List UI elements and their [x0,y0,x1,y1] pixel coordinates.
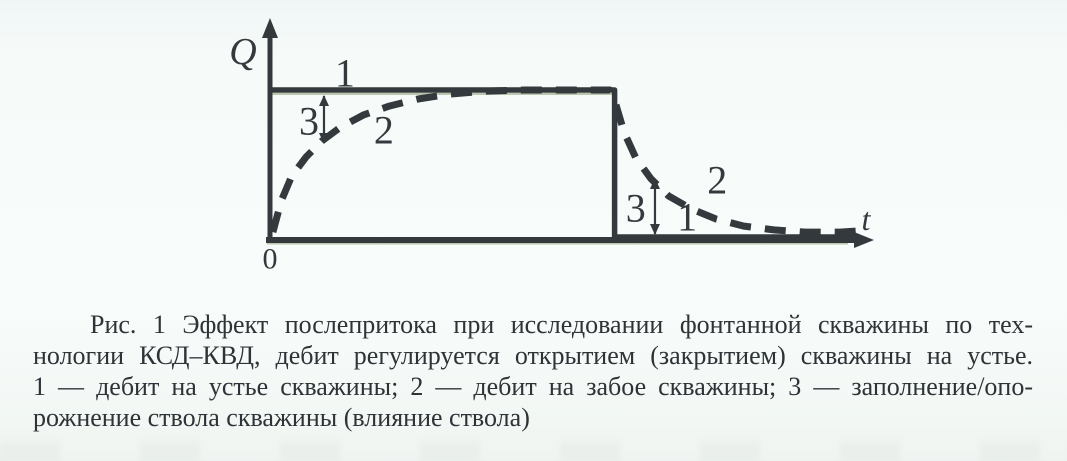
series-line-2 [273,90,858,232]
curve-label-3: 3 [626,186,646,231]
caption-line-3: 1 — дебит на устье скважины; 2 — дебит н… [33,371,1033,402]
scanned-page: 132312 Q t 0 Рис. 1 Эффект послепритока … [0,0,1067,461]
curve-label-3: 3 [299,99,319,144]
x-axis-label: t [862,201,872,237]
figure-chart: 132312 Q t 0 [0,0,1067,300]
caption-line-1: Рис. 1 Эффект послепритока при исследова… [33,309,1033,340]
origin-label: 0 [263,243,278,276]
annotation-layer: 132312 [299,51,727,240]
y-axis-label: Q [229,31,256,73]
curve-label-1: 1 [335,51,355,96]
scan-artifact-band [0,441,1067,461]
curve-label-2: 2 [707,158,727,203]
figure-caption: Рис. 1 Эффект послепритока при исследова… [33,309,1033,433]
caption-line-4: рожнение ствола скважины (влияние ствола… [33,402,1033,433]
curve-label-1: 1 [677,195,697,240]
caption-line-2: нологии КСД–КВД, дебит регулируется откр… [33,340,1033,371]
curve-label-2: 2 [374,108,394,153]
series-layer [272,90,858,237]
series-line-1 [272,90,857,237]
